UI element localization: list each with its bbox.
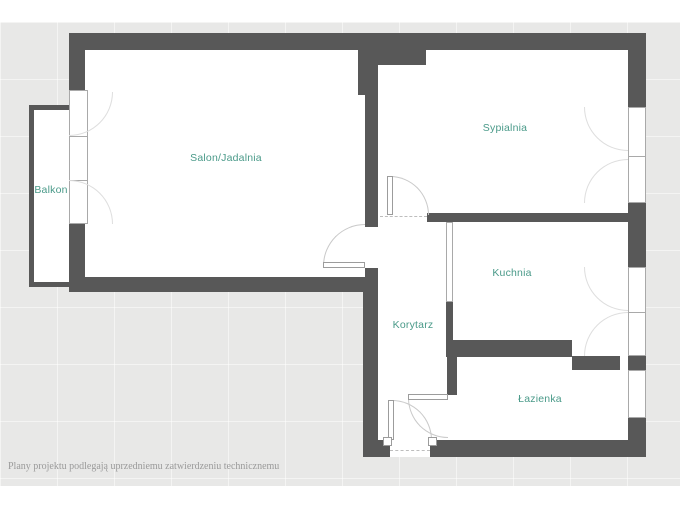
room-label-salon: Salon/Jadalnia [190,152,262,164]
window-mullion [629,156,645,157]
window-kuchnia [628,267,646,356]
door-leaf-entrance [388,400,394,440]
wall-segment [628,203,646,267]
door-leaf-sypialnia [387,176,393,215]
threshold-entrance [390,450,430,451]
window-mullion [70,136,87,137]
door-jamb [428,437,437,446]
window-mullion [629,312,645,313]
room-label-lazienka: Łazienka [518,393,562,405]
wall-segment [69,33,85,91]
wall-segment [446,302,453,340]
wall-segment [430,440,646,457]
window-lazienka [628,370,646,418]
wall-segment [628,355,646,370]
balcony-parapet [29,105,34,287]
door-gap-lazienka [447,395,457,438]
room-label-kuchnia: Kuchnia [492,267,531,279]
disclaimer-text: Plany projektu podlegają uprzedniemu zat… [8,461,279,472]
wall-segment [427,213,630,222]
opening-kuchnia [446,222,453,302]
wall-segment [365,268,378,292]
door-leaf-lazienka [408,394,448,400]
wall-segment [447,357,457,395]
wall-segment [628,33,646,107]
balcony-parapet [29,282,69,287]
floor-area-balcony [29,105,69,287]
wall-segment [365,95,378,227]
door-gap-entrance [390,440,430,457]
wall-segment [363,292,378,457]
floorplan-page: Salon/Jadalnia Sypialnia Balkon Kuchnia … [0,0,680,510]
door-gap-salon [365,227,378,268]
threshold-sypialnia [380,216,427,217]
wall-segment [572,356,620,370]
wall-segment [69,277,378,292]
balcony-parapet [29,105,69,110]
door-jamb [383,437,392,446]
room-label-korytarz: Korytarz [393,319,434,331]
room-label-balkon: Balkon [34,184,67,196]
wall-segment [358,48,426,65]
room-label-sypialnia: Sypialnia [483,122,527,134]
door-leaf-salon [323,262,365,268]
wall-segment [446,340,572,357]
window-sypialnia [628,107,646,203]
wall-segment [628,418,646,457]
